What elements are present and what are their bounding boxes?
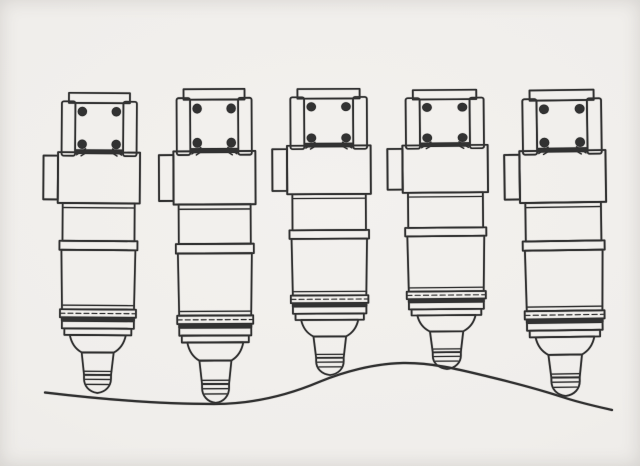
- injector-2: [159, 89, 257, 403]
- scanned-figure: [0, 0, 640, 466]
- injector-diagram: [0, 0, 640, 466]
- injector-5: [503, 89, 609, 396]
- injector-1: [42, 93, 141, 394]
- ground-line: [45, 363, 612, 410]
- injector-4: [387, 90, 490, 370]
- injector-3: [272, 89, 372, 376]
